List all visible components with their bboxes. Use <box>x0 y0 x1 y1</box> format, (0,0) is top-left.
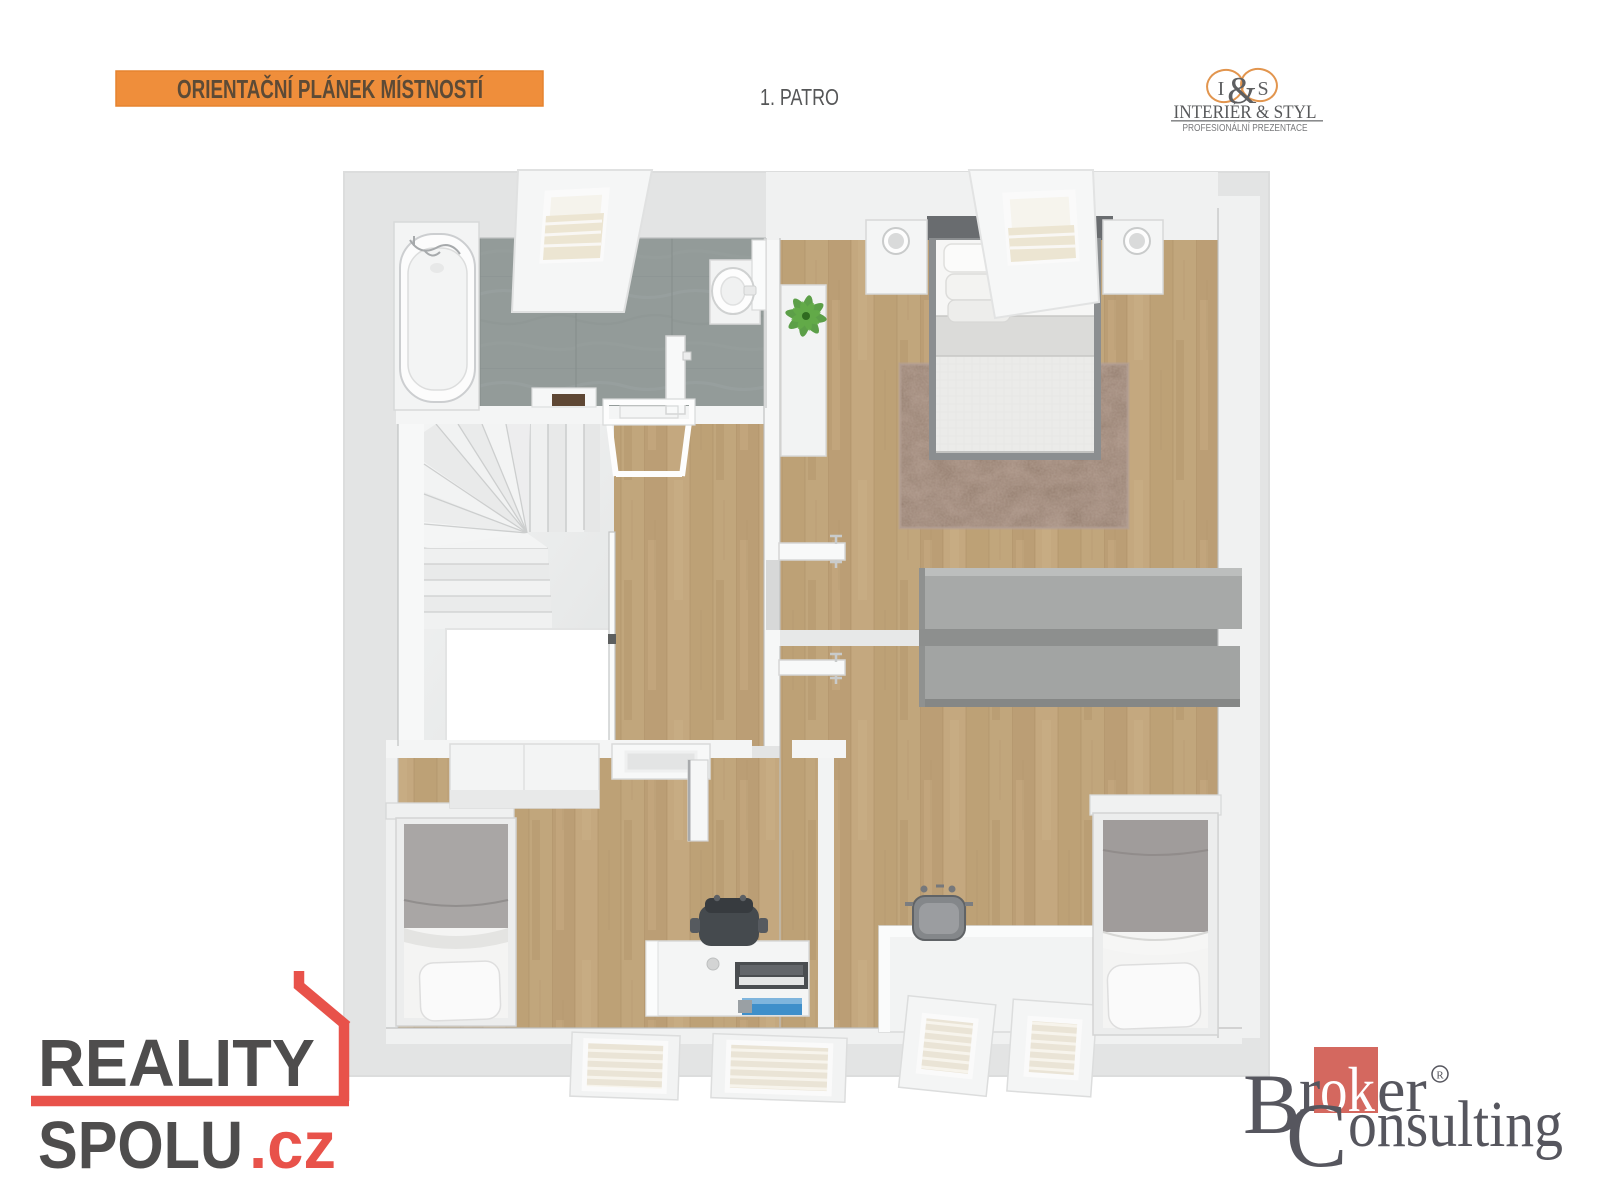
svg-text:INTERIÉR & STYL: INTERIÉR & STYL <box>1174 101 1317 123</box>
svg-text:ORIENTAČNÍ PLÁNEK MÍSTNOSTÍ: ORIENTAČNÍ PLÁNEK MÍSTNOSTÍ <box>177 74 484 104</box>
svg-text:REALITY: REALITY <box>38 1026 315 1101</box>
svg-text:C: C <box>1286 1084 1347 1186</box>
svg-text:SPOLU: SPOLU <box>38 1108 243 1183</box>
svg-text:I: I <box>1218 78 1225 100</box>
svg-text:1. PATRO: 1. PATRO <box>760 84 839 110</box>
svg-text:onsulting: onsulting <box>1348 1088 1563 1161</box>
svg-text:S: S <box>1257 78 1268 100</box>
svg-text:R: R <box>1436 1070 1444 1082</box>
svg-text:PROFESIONÁLNÍ PREZENTACE: PROFESIONÁLNÍ PREZENTACE <box>1183 121 1308 134</box>
svg-text:.cz: .cz <box>249 1108 336 1183</box>
